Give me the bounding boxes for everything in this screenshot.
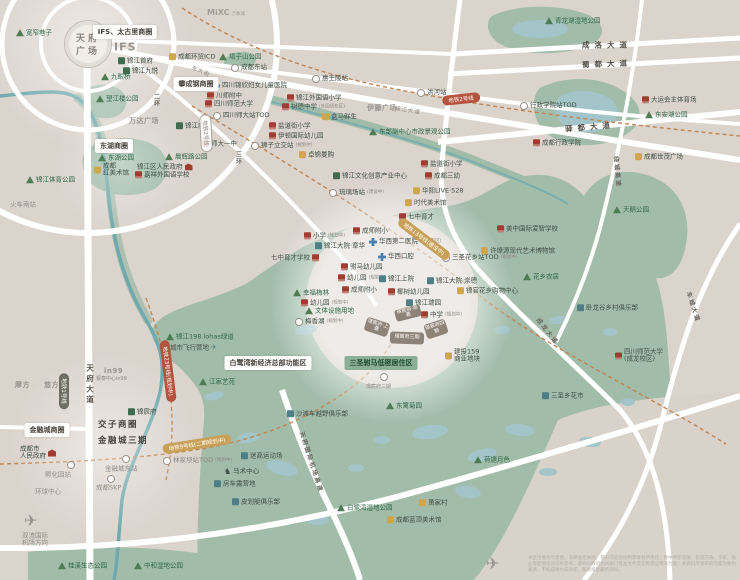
district-badge: IFS、太古里商圈 <box>93 25 157 39</box>
metro-line-badge: 地铁1号线 <box>59 373 69 409</box>
tianfu-square-label-2: 广场 <box>76 44 100 57</box>
road-label: 成洛大道 <box>582 40 632 51</box>
project-block: 璟宸府·观著 <box>394 304 422 322</box>
mixc-logo-text: MiXC <box>207 8 229 17</box>
ifs-logo: IFS <box>114 41 137 54</box>
project-block: 璟宸府·上叠 <box>363 317 390 338</box>
mixc-logo-sublabel: 万象城 <box>231 11 245 17</box>
district-badge: 白鹭湾新经济总部功能区 <box>225 356 312 370</box>
disclaimer-text: 本区位图为示意图，非精准距离图，部分内容因绘制需要有所简化；图中所示道路、轨道交… <box>528 556 736 574</box>
project-block: 璟宸府四期 <box>423 318 449 339</box>
project-block: 璟宸府三期 <box>390 331 424 344</box>
district-badge: 攀成钢商圈 <box>174 77 219 91</box>
road-label: 天府大道 <box>85 364 96 406</box>
district-badge: 东湖商圈 <box>95 139 133 153</box>
mixc-logo: MiXC 万象城 <box>207 8 245 17</box>
project-blocks-layer: 璟宸府·观著璟宸府·上叠璟宸府三期璟宸府四期 <box>0 0 740 580</box>
map: 天府 广场 IFS MiXC 万象城 宽窄巷子锦江首府锦江九悦九眼桥成都环贸IC… <box>0 0 740 580</box>
metro-line-badge: 地铁2号线 <box>199 114 213 152</box>
district-badge: 三圣驸马低密居住区 <box>345 356 418 370</box>
road-label: 三环 <box>234 151 243 165</box>
district-badge: 金融城商圈 <box>25 423 70 437</box>
road-label: 二环 <box>152 93 161 107</box>
road-label: 蜀都大道 <box>582 58 632 71</box>
